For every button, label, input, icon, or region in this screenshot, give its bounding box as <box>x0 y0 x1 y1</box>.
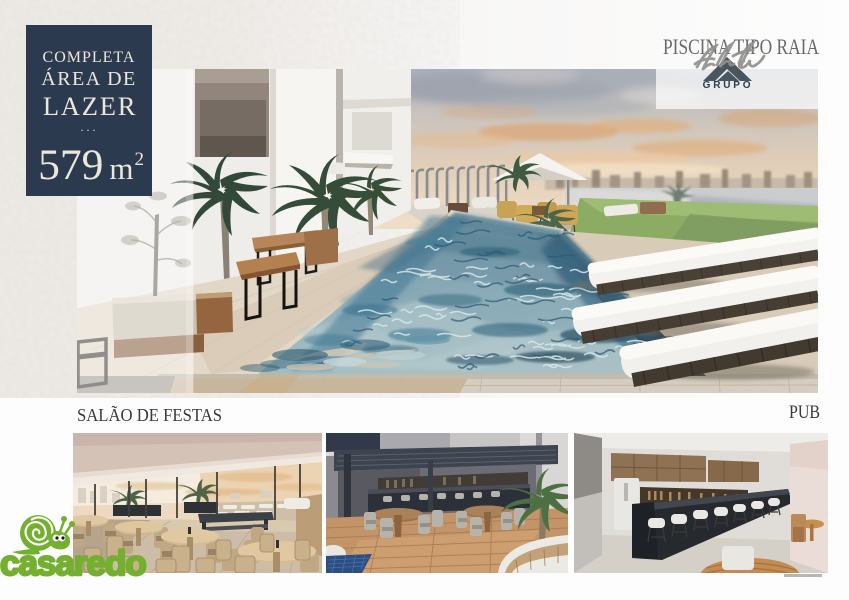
svg-text:GRUPO: GRUPO <box>703 80 754 91</box>
svg-text:ÁREA DE: ÁREA DE <box>41 67 137 90</box>
svg-text:PUB: PUB <box>789 403 820 423</box>
svg-text:casaredo: casaredo <box>0 544 146 583</box>
svg-text:COMPLETA: COMPLETA <box>43 49 136 66</box>
svg-text:LAZER: LAZER <box>43 91 137 121</box>
svg-text:···: ··· <box>80 123 98 137</box>
svg-text:SALÃO DE FESTAS: SALÃO DE FESTAS <box>77 404 222 425</box>
